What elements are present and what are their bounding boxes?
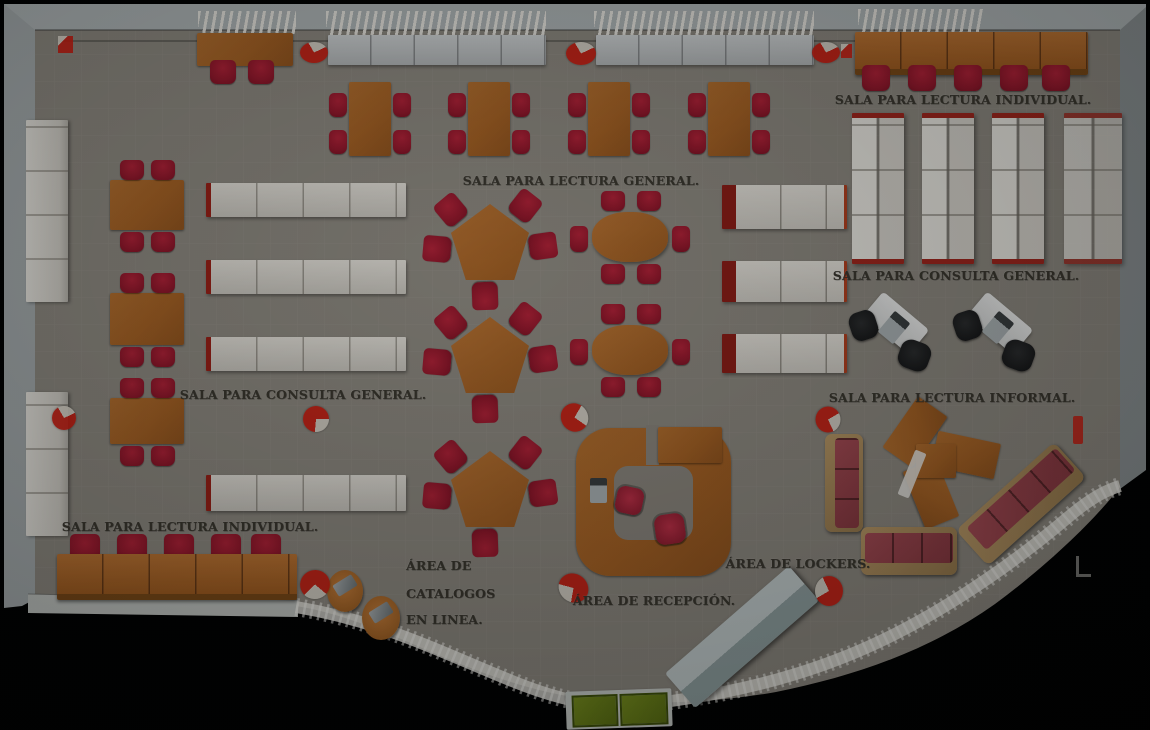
carrel-desk-row	[57, 554, 297, 600]
chair	[601, 304, 625, 324]
chair	[120, 160, 144, 180]
bookshelf-column	[852, 113, 904, 264]
fire-extinguisher-marker	[566, 42, 596, 65]
chair	[422, 348, 452, 376]
chair	[527, 231, 558, 261]
fire-extinguisher-marker	[300, 42, 328, 63]
chair	[151, 446, 175, 466]
sofa-cushions	[835, 438, 859, 528]
chair	[120, 347, 144, 367]
chair	[527, 478, 558, 508]
reading-table	[708, 82, 750, 156]
chair	[329, 130, 347, 154]
label-catalogs-line3: EN LINEA.	[406, 614, 483, 627]
bookshelf-top-wall	[596, 35, 814, 65]
chair	[637, 191, 661, 211]
label-reading-individual-top: SALA PARA LECTURA INDIVIDUAL.	[835, 94, 1092, 107]
chair	[448, 93, 466, 117]
sofa-cushions	[865, 533, 953, 563]
label-reading-informal: SALA PARA LECTURA INFORMAL.	[829, 392, 1076, 405]
chair	[472, 282, 499, 311]
fire-extinguisher-marker	[816, 407, 841, 433]
chair	[632, 93, 650, 117]
chair	[393, 93, 411, 117]
chair	[672, 339, 690, 365]
reading-table	[349, 82, 391, 156]
chair	[512, 93, 530, 117]
label-lockers: ÁREA DE LOCKERS.	[726, 558, 871, 571]
chair	[637, 304, 661, 324]
bookshelf-column	[1064, 113, 1122, 264]
chair	[120, 378, 144, 398]
entrance-mat-frame	[565, 688, 672, 730]
chair	[151, 273, 175, 293]
chair	[248, 60, 274, 84]
books-fringe	[326, 11, 546, 36]
chair	[1042, 65, 1070, 91]
chair	[472, 529, 499, 558]
chair	[393, 130, 411, 154]
fire-extinguisher-marker	[812, 42, 840, 63]
chair	[568, 130, 586, 154]
bookshelf-row	[722, 261, 847, 302]
chair	[954, 65, 982, 91]
chair	[862, 65, 890, 91]
wall-right	[1120, 7, 1146, 489]
books-fringe	[198, 11, 296, 34]
chair	[570, 226, 588, 252]
monitor	[590, 478, 607, 503]
chair	[120, 446, 144, 466]
consult-table	[110, 398, 184, 444]
label-reading-general: SALA PARA LECTURA GENERAL.	[463, 175, 700, 188]
chair	[527, 344, 558, 374]
chair	[568, 93, 586, 117]
bookshelf-row	[722, 334, 847, 373]
chair	[637, 264, 661, 284]
bookshelf-row	[206, 337, 406, 371]
bookshelf-row	[722, 185, 847, 229]
chair	[151, 347, 175, 367]
reception-counter-segment	[658, 427, 722, 463]
chair	[688, 93, 706, 117]
reading-table	[468, 82, 510, 156]
chair	[688, 130, 706, 154]
bookshelf-row	[206, 475, 406, 511]
chair	[752, 130, 770, 154]
label-consult-general-left: SALA PARA CONSULTA GENERAL.	[180, 389, 427, 402]
chair	[1000, 65, 1028, 91]
label-consult-general-right: SALA PARA CONSULTA GENERAL.	[833, 270, 1080, 283]
chair	[570, 339, 588, 365]
consult-table	[110, 180, 184, 230]
chair	[637, 377, 661, 397]
chair	[472, 395, 499, 424]
label-catalogs-line2: CATALOGOS	[406, 588, 495, 601]
chair	[448, 130, 466, 154]
chair	[672, 226, 690, 252]
chair	[601, 377, 625, 397]
fire-extinguisher-marker	[815, 576, 843, 606]
bookshelf-left-wall	[26, 120, 68, 302]
bookshelf-column	[922, 113, 974, 264]
entrance-mat	[572, 694, 619, 728]
chair	[210, 60, 236, 84]
office-chair-red	[653, 512, 687, 546]
fire-extinguisher-marker	[58, 36, 73, 53]
chair	[422, 235, 452, 263]
label-catalogs-line1: ÁREA DE	[406, 560, 471, 573]
corner-mark	[1076, 556, 1091, 577]
chair	[120, 232, 144, 252]
books-fringe	[594, 11, 814, 36]
bookshelf-row	[206, 260, 406, 294]
chair	[151, 378, 175, 398]
chair	[601, 191, 625, 211]
oval-table	[592, 212, 668, 262]
oval-table	[592, 325, 668, 375]
bookshelf-row	[206, 183, 406, 217]
chair	[512, 130, 530, 154]
chair	[329, 93, 347, 117]
chair	[908, 65, 936, 91]
fire-extinguisher-marker	[1073, 416, 1083, 444]
chair	[601, 264, 625, 284]
floor-plan-render: SALA PARA LECTURA INDIVIDUAL. SALA PARA …	[0, 0, 1150, 730]
reading-table	[588, 82, 630, 156]
chair	[151, 160, 175, 180]
entrance-mat	[619, 692, 668, 726]
bookshelf-top-wall	[328, 35, 546, 65]
chair	[120, 273, 144, 293]
chair	[752, 93, 770, 117]
chair	[422, 482, 452, 510]
label-reading-individual-bottom: SALA PARA LECTURA INDIVIDUAL.	[62, 521, 319, 534]
chair	[151, 232, 175, 252]
fire-extinguisher-marker	[52, 406, 76, 430]
consult-table	[110, 293, 184, 345]
bookshelf-column	[992, 113, 1044, 264]
books-fringe	[858, 9, 983, 34]
label-reception: ÁREA DE RECEPCIÓN.	[573, 595, 735, 608]
chair	[632, 130, 650, 154]
fire-extinguisher-marker	[841, 44, 852, 58]
